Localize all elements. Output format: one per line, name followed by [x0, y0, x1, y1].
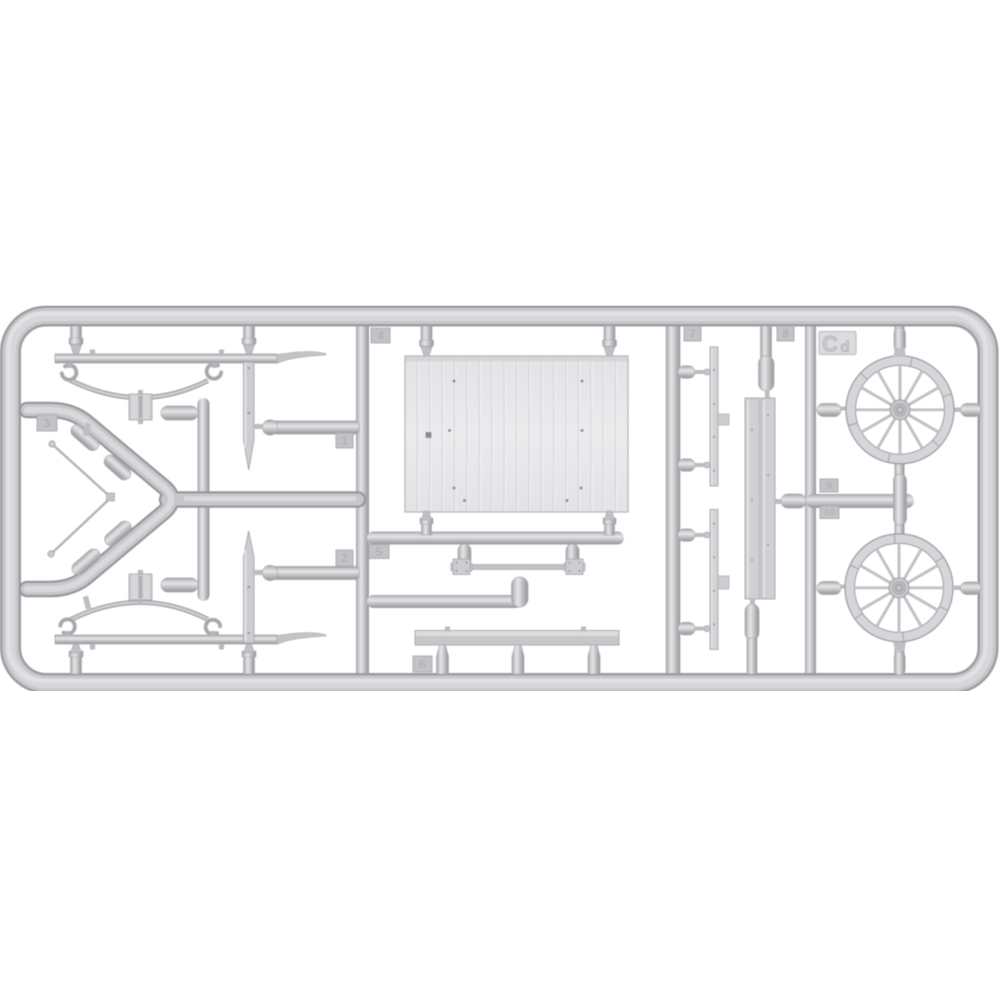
svg-text:4: 4 — [377, 329, 384, 343]
svg-text:d: d — [840, 339, 850, 356]
svg-text:3: 3 — [44, 416, 51, 430]
svg-text:6: 6 — [419, 657, 426, 671]
svg-text:9: 9 — [826, 481, 832, 493]
svg-text:1: 1 — [341, 434, 348, 448]
svg-text:7: 7 — [689, 327, 696, 341]
svg-text:8: 8 — [782, 327, 789, 341]
svg-text:10: 10 — [824, 508, 834, 518]
svg-text:C: C — [822, 332, 838, 357]
svg-text:5: 5 — [376, 545, 383, 559]
svg-text:2: 2 — [341, 551, 348, 565]
